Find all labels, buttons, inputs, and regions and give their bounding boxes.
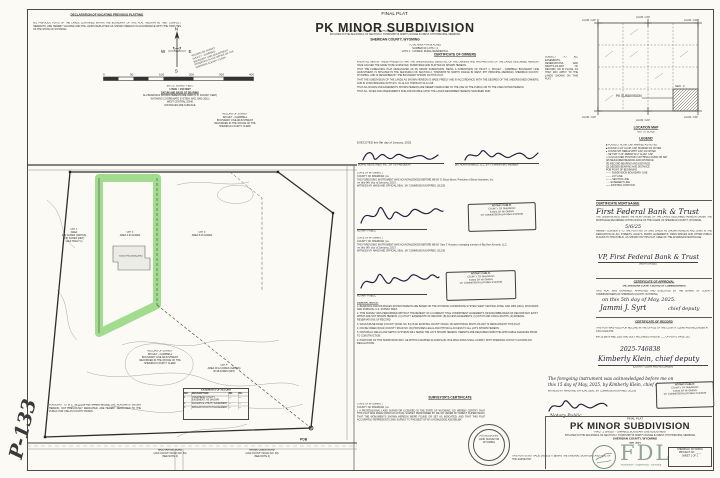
legend-text: EXISTING CONTOUR bbox=[611, 185, 635, 187]
plat-map bbox=[27, 140, 357, 470]
stamp-line: MY COMMISSION EXPIRES 3/12/2030 bbox=[657, 392, 713, 397]
legend-symbol: —·— bbox=[606, 178, 612, 180]
legend-text: SET 5/8" X 24" REBAR W/ 2" ALUM. CAP bbox=[608, 153, 653, 155]
datum-line: DISTANCES ARE SURFACE bbox=[100, 104, 260, 107]
record-book-line: this 15 day of May, 2025, AND DULY RECOR… bbox=[596, 336, 712, 339]
side-paragraph-text: SUBJECT TO ALL EASEMENTS, RESERVATIONS A… bbox=[545, 56, 578, 81]
legend-symbol: (R) bbox=[606, 163, 609, 165]
note-item: 6. PORTIONS OF THIS SUBDIVISION MAY LIE … bbox=[357, 339, 539, 345]
notary2-stamp: NOTARY PUBLIC COUNTY OF SHERIDAN STATE O… bbox=[446, 270, 517, 301]
lot2-label: LOT 2 AREA 4.93 ACRES bbox=[108, 231, 152, 247]
surveyor-body: I, A PROFESSIONAL LAND SURVEYOR LICENSED… bbox=[357, 410, 485, 422]
mortgagee-bank-handwritten: First Federal Bank & Trust bbox=[596, 207, 712, 216]
cell: OVERHEAD UTILITY EASEMENT, AS SHOWN bbox=[192, 396, 229, 402]
survey-ref-line: SHERIDAN COUNTY CLERK bbox=[136, 362, 184, 365]
owners-heading: CERTIFICATE OF OWNERS bbox=[380, 53, 530, 57]
survey-ref-line: SHERIDAN COUNTY CLERK bbox=[207, 125, 263, 128]
paragraph: KNOW ALL MEN BY THESE PRESENTS THAT THE … bbox=[357, 61, 539, 67]
stamp-line: MY COMMISSION EXPIRES 3/12/2030 bbox=[447, 281, 515, 286]
legend-text: EASEMENT LINE bbox=[611, 181, 630, 183]
paragraph: THAT ALL ROADS AND EASEMENTS SHOWN HEREO… bbox=[357, 86, 539, 89]
monument-label: ALUM. CAP bbox=[684, 115, 698, 119]
monument-label: ALUM. CAP bbox=[636, 118, 650, 122]
mortgagee-heading: CERTIFICATE MORTGAGEE bbox=[596, 202, 712, 206]
approval-date: on this 5th day of May, 2025. bbox=[602, 297, 676, 303]
notary2-block: STATE OF WYOMING ) COUNTY OF SHERIDAN ) … bbox=[357, 237, 539, 267]
notary-caption: NOTARY PUBLIC bbox=[357, 230, 427, 233]
declaration-block: DECLARATION OF VACATING PREVIOUS PLATTIN… bbox=[33, 13, 181, 47]
paragraph: THAT ALL TAXES AND ASSESSMENTS DUE AND P… bbox=[357, 91, 539, 94]
legend-text: LOT LINE bbox=[612, 175, 623, 177]
legend-text: POINT OF BEGINNING bbox=[612, 169, 637, 171]
compass-e-label: E bbox=[189, 49, 192, 54]
road-label-left: WOLF/KRUSE ROAD (AKA COUNTY ROAD NO. 84)… bbox=[148, 449, 192, 472]
section-divider bbox=[596, 278, 712, 279]
mortgagee-p2: HEREBY CONSENTS TO THE PLATTING OF SAID … bbox=[596, 230, 712, 239]
lot4-label: LOT 4 AREA 49.12 ACRES (GROSS) 46.38 ACR… bbox=[200, 364, 248, 387]
note-item: 2. THIS SURVEY WAS PERFORMED WITHOUT THE… bbox=[357, 313, 539, 322]
section-divider bbox=[596, 317, 712, 318]
survey-reference-inmap: RECORD OF SURVEY SHULEY - CAMPBELL BOUND… bbox=[136, 350, 184, 389]
scale-tick: 0 bbox=[103, 73, 105, 77]
compass-n-label: N bbox=[175, 27, 178, 32]
cell: — bbox=[239, 396, 248, 402]
record-filed-line: THIS PLAT WAS FILED FOR RECORD IN THE OF… bbox=[596, 327, 712, 333]
title-sub2: SITUATED IN THE SE1/4SW1/4 OF SECTION 2,… bbox=[280, 33, 510, 36]
note-item: 5. INDIVIDUAL WELLS AND SEPTIC SYSTEMS W… bbox=[357, 332, 539, 338]
legend-text: RECORD BEARING AND DISTANCE bbox=[610, 163, 650, 165]
title-eyebrow: FINAL PLAT bbox=[300, 11, 489, 17]
owner2-signature bbox=[462, 146, 540, 164]
surveyor-heading: SURVEYOR'S CERTIFICATE bbox=[380, 396, 520, 400]
road-note: (SEE NOTE 4) bbox=[238, 455, 286, 458]
cell: — bbox=[229, 406, 239, 409]
location-map-scale: NOT TO SCALE bbox=[596, 131, 696, 134]
scale-bar: 0 50 100 200 300 400 bbox=[103, 72, 259, 84]
legend-symbol: (D) bbox=[606, 166, 609, 168]
mortgagee-p1-wrap: THE UNDERSIGNED, BEING THE MORTGAGEE OF … bbox=[596, 216, 712, 225]
lot3-area: AREA 5.06 ACRES bbox=[180, 234, 224, 237]
monument-label: ALUM. CAP bbox=[684, 18, 698, 22]
executed-line: EXECUTED this 9th day of January, 2025. bbox=[357, 141, 539, 145]
legend-text: SECTION LINE bbox=[612, 178, 629, 180]
section-divider bbox=[596, 200, 712, 201]
contour-lines bbox=[47, 182, 303, 437]
legend-symbol: ─── bbox=[606, 172, 611, 174]
legend-text: SUBDIVISION BOUNDARY LINE bbox=[612, 172, 648, 174]
legend-text: DEEDED BEARING AND DISTANCE bbox=[610, 166, 650, 168]
owner2-caption: BIG HORN KENNELS, LLC, BY ITS MANAGING M… bbox=[455, 164, 539, 167]
legend-text: FOUND 3-1/4" ALUM. CAP, MARKED AS NOTED bbox=[608, 147, 661, 149]
lot1-label: LOT 1 AREA 2.47 ACRES (GROSS) 2.07 ACRES… bbox=[55, 228, 93, 267]
record-witness-wrap: WITNESS MY HAND AND OFFICIAL SEAL. MY CO… bbox=[548, 390, 652, 397]
pob-label: POB bbox=[300, 438, 324, 442]
paragraph: THAT THE FOREGOING PLAT DESIGNATED AS PK… bbox=[357, 68, 539, 77]
notary1-stamp: NOTARY PUBLIC COUNTY OF SHERIDAN STATE O… bbox=[468, 202, 537, 232]
lot1-aka: (AKA TRACT 1) bbox=[55, 240, 93, 243]
road-label-center: KRUSE CREEK ROAD (AKA COUNTY ROAD NO. 84… bbox=[238, 449, 286, 472]
note-item: 3. WOLF/KRUSE ROAD (COUNTY ROAD NO. 84) … bbox=[357, 323, 539, 326]
map-note: PURSUANT TO W.S. 34-12-104 ALL LANDS WIT… bbox=[49, 404, 141, 413]
legend-symbol: – – – bbox=[606, 175, 611, 177]
title-county: SHERIDAN COUNTY, WYOMING bbox=[330, 38, 460, 42]
owner2-caption-wrap: BIG HORN KENNELS, LLC, BY ITS MANAGING M… bbox=[455, 163, 539, 172]
legend-symbol: (M) bbox=[606, 160, 610, 162]
road-note: (SEE NOTE 3) bbox=[148, 455, 192, 458]
fdl-box-line: SHEET 1 OF 1 bbox=[669, 455, 711, 458]
approval-signature-caption: chief deputy bbox=[668, 306, 699, 312]
owner1-caption: BURNS INDUSTRIES, INC., BY ITS PRESIDENT bbox=[358, 164, 444, 167]
approval-subheading: THE SHERIDAN COUNTY BOARD OF COMMISSIONE… bbox=[596, 285, 712, 288]
legend-item: ~~~ EXISTING CONTOUR bbox=[606, 185, 712, 188]
map-note-wrap: PURSUANT TO W.S. 34-12-104 ALL LANDS WIT… bbox=[49, 404, 141, 418]
building-label: EXISTING BUILDING bbox=[112, 255, 150, 258]
monument-label: ALUM. CAP bbox=[636, 15, 650, 19]
notary2-signature bbox=[357, 268, 441, 294]
scale-tick: 200 bbox=[189, 73, 194, 77]
owner1-signature bbox=[360, 148, 440, 164]
record-notary-stamp: NOTARY PUBLIC COUNTY OF SHERIDAN STATE O… bbox=[656, 381, 715, 409]
monument-label: ALUM. CAP bbox=[582, 115, 596, 119]
location-target-label: PK SUBDIVISION bbox=[616, 94, 642, 98]
owner1-caption-wrap: BURNS INDUSTRIES, INC., BY ITS PRESIDENT bbox=[358, 163, 444, 172]
plat-sheet: P-133 DECLARATION OF VACATING PREVIOUS P… bbox=[0, 0, 720, 478]
notary-witness: WITNESS MY HAND AND OFFICIAL SEAL. MY CO… bbox=[357, 250, 539, 253]
north-arrow-icon: N S W E bbox=[160, 27, 194, 73]
approval-signature: Jammi J. Syrt bbox=[600, 304, 646, 312]
fdl-wordmark: FDL bbox=[620, 441, 671, 465]
lot2-area: AREA 4.93 ACRES bbox=[108, 234, 152, 237]
legend-heading: LEGEND bbox=[596, 137, 696, 141]
mortgagee-signature: VP, First Federal Bank & Trust bbox=[598, 253, 712, 261]
notary-witness: WITNESS MY HAND AND OFFICIAL SEAL. MY CO… bbox=[357, 185, 539, 188]
record-reception-number: 2025-746838 bbox=[620, 346, 660, 353]
surveyor-block: STATE OF WYOMING ) COUNTY OF SHERIDAN ) … bbox=[357, 403, 485, 465]
paragraph: THAT THE SUBDIVISION OF THE LANDS AS SHO… bbox=[357, 79, 539, 85]
mortgagee-p1: THE UNDERSIGNED, BEING THE MORTGAGEE OF … bbox=[596, 216, 712, 222]
notary1-block: STATE OF WYOMING ) COUNTY OF SHERIDAN ) … bbox=[357, 172, 539, 202]
notary1-signature bbox=[357, 203, 445, 229]
scale-tick: 300 bbox=[219, 73, 224, 77]
cell: — bbox=[229, 396, 239, 402]
mortgagee-p2-wrap: HEREBY CONSENTS TO THE PLATTING OF SAID … bbox=[596, 230, 712, 248]
legend-text: MEASURED BEARING AND DISTANCE bbox=[610, 160, 653, 162]
legend-text: FOUND 2" ALUM. CAP, MARKED AS NOTED bbox=[608, 144, 657, 146]
record-heading: CERTIFICATE OF RECORD bbox=[596, 320, 712, 324]
legend-symbol: POB bbox=[606, 169, 611, 171]
note-item: 4. KRUSE CREEK ROAD (COUNTY ROAD NO. 84)… bbox=[357, 327, 539, 330]
lot3-label: LOT 3 AREA 5.06 ACRES bbox=[180, 231, 224, 247]
lot4-net: 46.38 ACRES (NET) bbox=[200, 370, 248, 373]
notary-caption: NOTARY PUBLIC bbox=[357, 295, 427, 298]
easements-table: EASEMENTS OF RECORD NO. DESCRIPTION BK. … bbox=[183, 388, 249, 420]
general-notes: GENERAL NOTES: 1. BEARINGS AND DISTANCES… bbox=[357, 302, 539, 394]
record-l2-wrap: this 15 day of May, 2025, AND DULY RECOR… bbox=[596, 336, 712, 344]
record-signature-caption: (COUNTY CLERK AND RECORDER) bbox=[598, 366, 708, 369]
scale-tick: 400 bbox=[249, 73, 254, 77]
legend-symbol: ~~~ bbox=[606, 185, 610, 187]
cell: — bbox=[239, 406, 248, 409]
fdl-address-box: SHERIDAN, WYOMING PROJECT NO. ____ SHEET… bbox=[668, 447, 712, 467]
side-paragraph: SUBJECT TO ALL EASEMENTS, RESERVATIONS A… bbox=[545, 56, 578, 110]
owners-paragraphs: KNOW ALL MEN BY THESE PRESENTS THAT THE … bbox=[357, 61, 539, 141]
titleblock-divider-v bbox=[545, 416, 546, 469]
approval-body: THIS PLAT WAS EXAMINED, APPROVED AND EXE… bbox=[596, 290, 712, 296]
record-notary-signature bbox=[546, 397, 610, 415]
record-witness: WITNESS MY HAND AND OFFICIAL SEAL. MY CO… bbox=[548, 390, 652, 393]
mortgagee-caption: (MORTGAGEE) bbox=[598, 263, 698, 266]
stamp-line: MY COMMISSION EXPIRES 3/12/2030 bbox=[469, 213, 535, 218]
record-signature: Kimberly Klein, chief deputy bbox=[598, 355, 699, 363]
building-label-wrap: EXISTING BUILDING bbox=[112, 255, 150, 263]
surveyor-seal: PROFESSIONAL LAND SURVEYOR WYOMING bbox=[468, 424, 510, 466]
note-item: 1. BEARINGS AND DISTANCES SHOWN HEREON A… bbox=[357, 305, 539, 311]
monument-label: ALUM. CAP bbox=[582, 18, 596, 22]
approval-heading: CERTIFICATE OF APPROVAL bbox=[596, 280, 712, 284]
scale-tick: 100 bbox=[159, 73, 164, 77]
approval-body-wrap: THIS PLAT WAS EXAMINED, APPROVED AND EXE… bbox=[596, 290, 712, 297]
cell: 1 bbox=[184, 396, 192, 402]
declaration-body: ALL PREVIOUS PLATS OF THE LANDS CONTAINE… bbox=[33, 22, 181, 31]
legend-text: CALCULATED POSITION, NOTHING FOUND OR SE… bbox=[609, 156, 668, 158]
pob-label-wrap: POB bbox=[300, 438, 324, 446]
legend: ■ FOUND 2" ALUM. CAP, MARKED AS NOTED ■ … bbox=[606, 144, 712, 198]
record-l1-wrap: THIS PLAT WAS FILED FOR RECORD IN THE OF… bbox=[596, 327, 712, 335]
scale-tick: 50 bbox=[130, 73, 134, 77]
cell: IRRIGATION DITCH EASEMENT bbox=[192, 406, 229, 409]
record-caption-wrap: (COUNTY CLERK AND RECORDER) bbox=[598, 365, 708, 374]
location-map-title: LOCATION MAP bbox=[596, 126, 696, 130]
mortgagee-caption-wrap: (MORTGAGEE) bbox=[598, 262, 698, 271]
cell: 3 bbox=[184, 406, 192, 409]
seal-line: WYOMING bbox=[473, 441, 505, 444]
location-map: PK SUBDIVISION SEC. 2 ALUM. CAP ALUM. CA… bbox=[580, 13, 712, 125]
subdivision-location-cell bbox=[673, 89, 698, 111]
legend-text: FOUND 5/8" REBAR WITH CAP, AS NOTED bbox=[608, 150, 656, 152]
declaration-title: DECLARATION OF VACATING PREVIOUS PLATTIN… bbox=[33, 13, 181, 17]
compass-w-label: W bbox=[161, 49, 166, 54]
section-label: SEC. 2 bbox=[675, 84, 685, 88]
legend-symbol: ····· bbox=[606, 181, 610, 183]
table-row: 1 OVERHEAD UTILITY EASEMENT, AS SHOWN — … bbox=[184, 396, 248, 403]
table-row: 3 IRRIGATION DITCH EASEMENT — — bbox=[184, 406, 248, 409]
